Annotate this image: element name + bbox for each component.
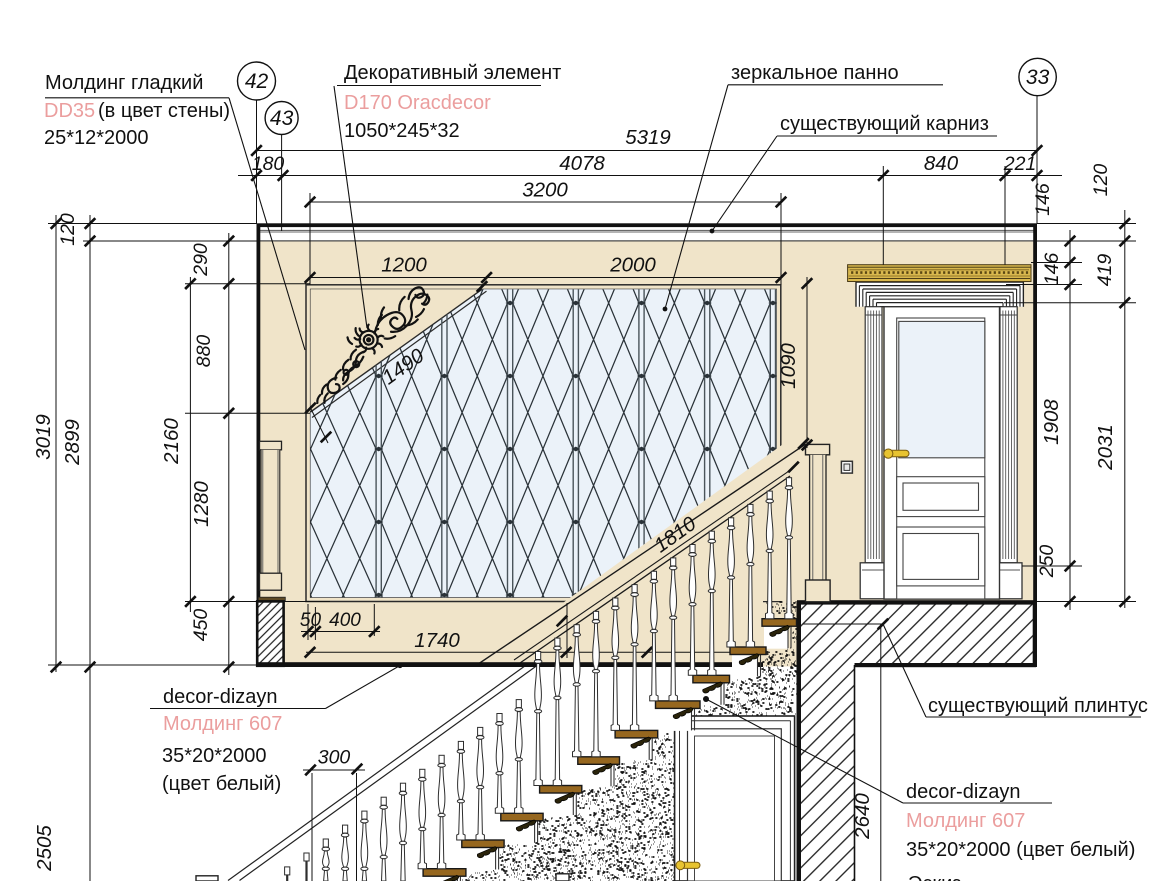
svg-text:(в цвет стены): (в цвет стены) [98,100,230,122]
svg-text:1090: 1090 [777,343,800,389]
svg-text:33: 33 [1026,66,1050,89]
svg-text:1050*245*32: 1050*245*32 [344,120,460,142]
svg-text:(цвет белый): (цвет белый) [162,773,281,795]
svg-text:250: 250 [1036,545,1058,579]
svg-text:2031: 2031 [1094,424,1117,471]
svg-text:35*20*2000 (цвет белый): 35*20*2000 (цвет белый) [906,839,1135,861]
svg-text:Декоративный элемент: Декоративный элемент [344,62,561,84]
svg-text:120: 120 [57,213,79,246]
svg-text:1740: 1740 [414,629,460,652]
svg-text:4078: 4078 [559,152,605,175]
svg-text:35*20*2000: 35*20*2000 [162,745,267,767]
svg-text:42: 42 [245,70,269,93]
svg-text:Молдинг 607: Молдинг 607 [163,713,282,735]
svg-text:120: 120 [1090,164,1112,197]
svg-text:2000: 2000 [609,254,656,277]
svg-text:2899: 2899 [61,419,84,466]
svg-text:43: 43 [270,107,294,130]
svg-text:290: 290 [190,243,212,277]
svg-text:146: 146 [1032,183,1054,216]
svg-text:3200: 3200 [522,179,568,202]
svg-text:2160: 2160 [160,418,183,465]
svg-text:2505: 2505 [33,825,56,872]
svg-text:840: 840 [924,152,959,175]
svg-text:880: 880 [193,335,215,368]
svg-text:Эскиз: Эскиз [908,873,961,881]
svg-text:decor-dizayn: decor-dizayn [906,781,1021,803]
svg-text:25*12*2000: 25*12*2000 [44,127,149,149]
svg-text:450: 450 [190,609,212,642]
svg-text:Молдинг 607: Молдинг 607 [906,810,1025,832]
svg-text:3019: 3019 [32,414,55,460]
svg-text:1280: 1280 [190,481,213,527]
svg-text:146: 146 [1041,253,1063,286]
svg-text:существующий плинтус: существующий плинтус [928,695,1148,717]
svg-text:50: 50 [300,610,322,631]
svg-text:существующий карниз: существующий карниз [780,113,989,135]
svg-text:5319: 5319 [625,126,671,149]
svg-text:decor-dizayn: decor-dizayn [163,686,278,708]
svg-text:221: 221 [1003,153,1037,175]
svg-text:D170 Oracdecor: D170 Oracdecor [344,92,491,114]
svg-text:2640: 2640 [851,793,874,840]
svg-text:300: 300 [318,747,351,769]
svg-text:419: 419 [1094,254,1116,287]
svg-text:Молдинг гладкий: Молдинг гладкий [45,72,203,94]
svg-text:400: 400 [329,610,361,631]
svg-text:1200: 1200 [381,254,427,277]
svg-text:зеркальное панно: зеркальное панно [731,62,899,84]
svg-text:DD35: DD35 [44,100,95,122]
svg-text:1908: 1908 [1040,399,1063,445]
